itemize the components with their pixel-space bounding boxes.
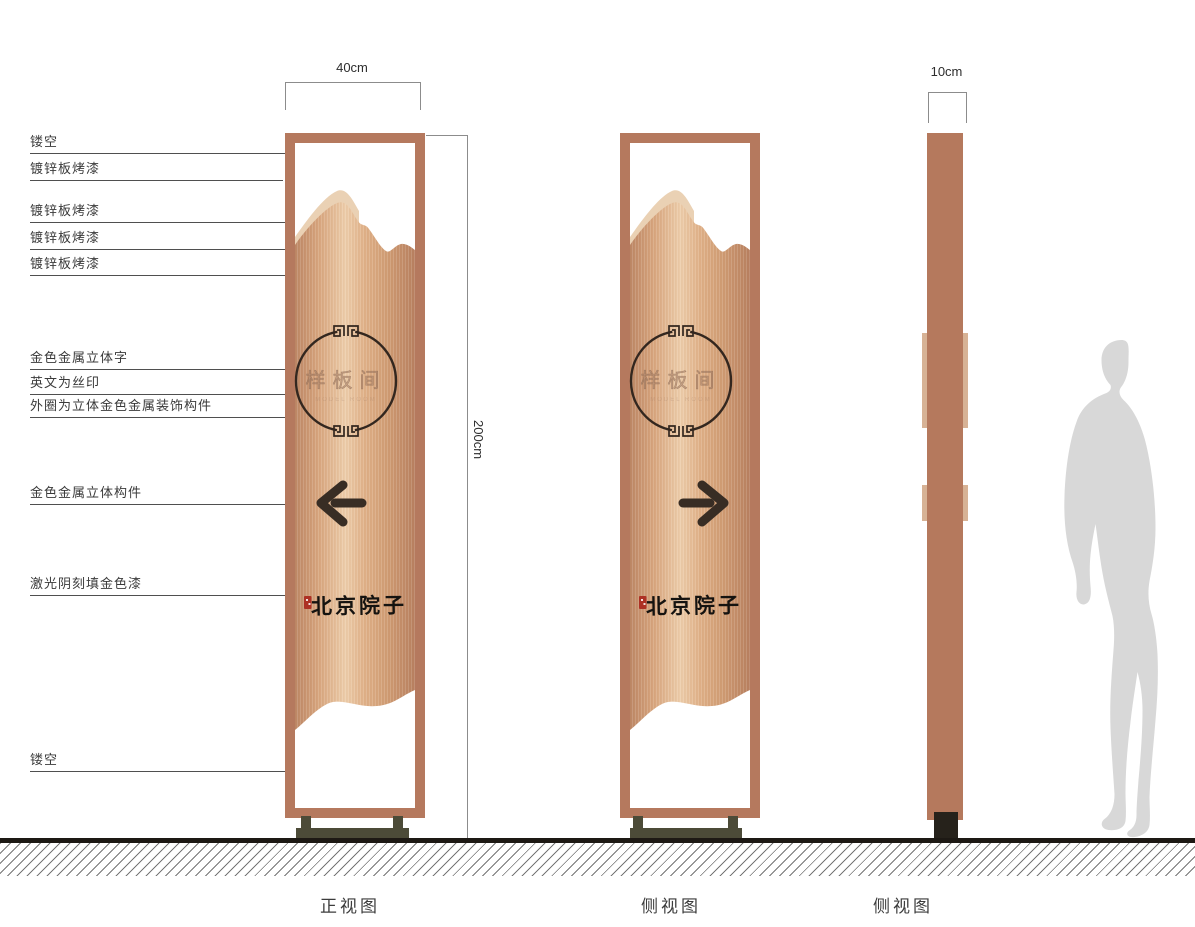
side-profile-bar [927, 133, 963, 820]
callout-galvanized-2: 镀锌板烤漆 [30, 204, 298, 223]
sign-front-view: 样板间 MODEL ROOM 北京院子 [285, 133, 425, 838]
sign-side-view: 样板间 MODEL ROOM 北京院子 [620, 133, 760, 838]
ground-hatch [0, 843, 1195, 876]
callout-hollow-bottom: 镂空 [30, 753, 303, 772]
sign-subtitle-text: MODEL ROOM [650, 397, 711, 403]
callout-galvanized-3: 镀锌板烤漆 [30, 231, 292, 250]
human-scale-silhouette [1030, 338, 1185, 838]
sign-base [630, 816, 742, 838]
callout-hollow-top: 镂空 [30, 135, 305, 154]
sign-subtitle-text: MODEL ROOM [315, 397, 376, 403]
dimension-height-tick [426, 135, 467, 136]
sign-title-text: 样板间 [306, 369, 387, 392]
view-label-front: 正视图 [320, 892, 380, 917]
callout-galvanized-1: 镀锌板烤漆 [30, 162, 283, 181]
brand-calligraphy: 北京院子 [639, 592, 742, 619]
copper-panel-texture [630, 202, 750, 730]
callout-laser-engraved: 激光阴刻填金色漆 [30, 577, 308, 596]
brand-calligraphy: 北京院子 [304, 592, 407, 619]
dimension-side-width: 10cm [925, 64, 968, 79]
dimension-height-line [467, 135, 468, 838]
dimension-side-width-bracket [928, 92, 967, 123]
sign-base [296, 816, 409, 838]
side-profile-base [934, 812, 958, 838]
dimension-front-width: 40cm [285, 60, 419, 75]
dimension-height: 200cm [471, 420, 486, 459]
brand-text: 北京院子 [646, 592, 742, 619]
sign-title-text: 样板间 [641, 369, 722, 392]
callout-galvanized-4: 镀锌板烤漆 [30, 257, 292, 276]
callout-outer-ring: 外圈为立体金色金属装饰构件 [30, 399, 315, 418]
dimension-front-width-bracket [285, 82, 421, 110]
copper-panel-texture [295, 202, 415, 730]
view-label-side-1: 侧视图 [641, 892, 701, 917]
elevation-drawing-canvas: 镂空 镀锌板烤漆 镀锌板烤漆 镀锌板烤漆 镀锌板烤漆 金色金属立体字 英文为丝印… [0, 0, 1195, 927]
brand-text: 北京院子 [311, 592, 407, 619]
view-label-side-2: 侧视图 [873, 892, 933, 917]
